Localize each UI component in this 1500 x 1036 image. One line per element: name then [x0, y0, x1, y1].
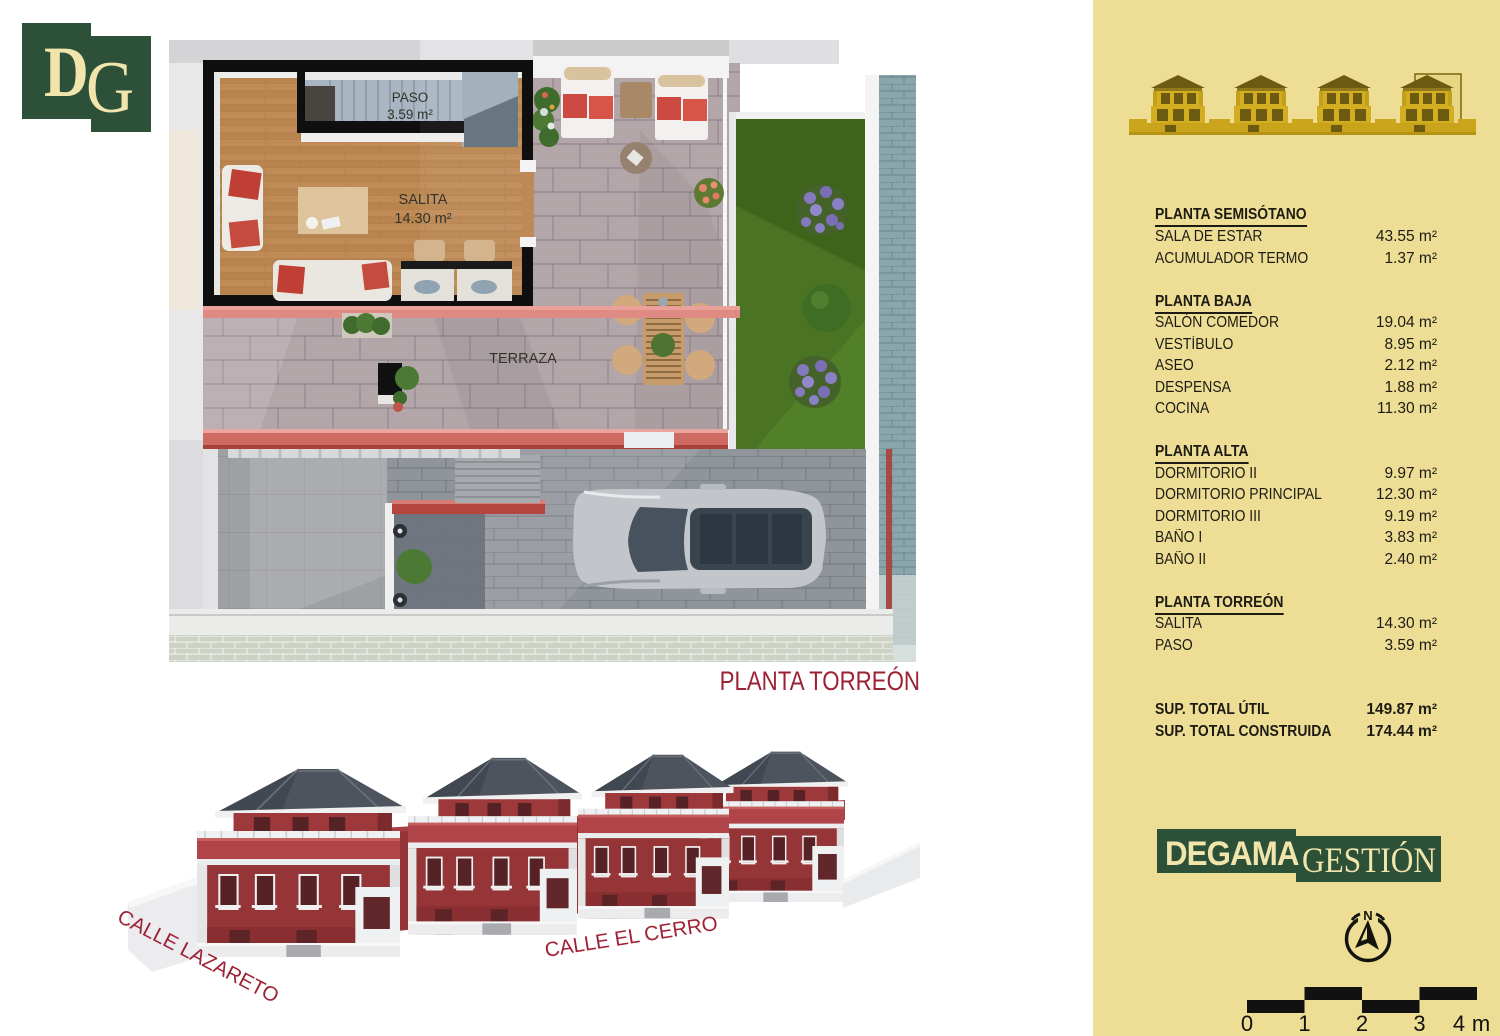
svg-text:m: m	[1472, 1011, 1490, 1035]
svg-text:0: 0	[1241, 1011, 1253, 1035]
svg-text:G: G	[86, 47, 134, 129]
svg-text:2: 2	[1356, 1011, 1368, 1035]
svg-text:4: 4	[1453, 1011, 1465, 1035]
svg-text:3.59 m²: 3.59 m²	[387, 107, 433, 122]
svg-text:SALITA: SALITA	[399, 192, 448, 208]
svg-text:1: 1	[1298, 1011, 1310, 1035]
svg-text:TERRAZA: TERRAZA	[489, 351, 557, 367]
svg-text:14.30 m²: 14.30 m²	[394, 211, 451, 227]
svg-text:PASO: PASO	[392, 90, 429, 105]
svg-text:D: D	[44, 32, 89, 112]
svg-text:3: 3	[1413, 1011, 1425, 1035]
